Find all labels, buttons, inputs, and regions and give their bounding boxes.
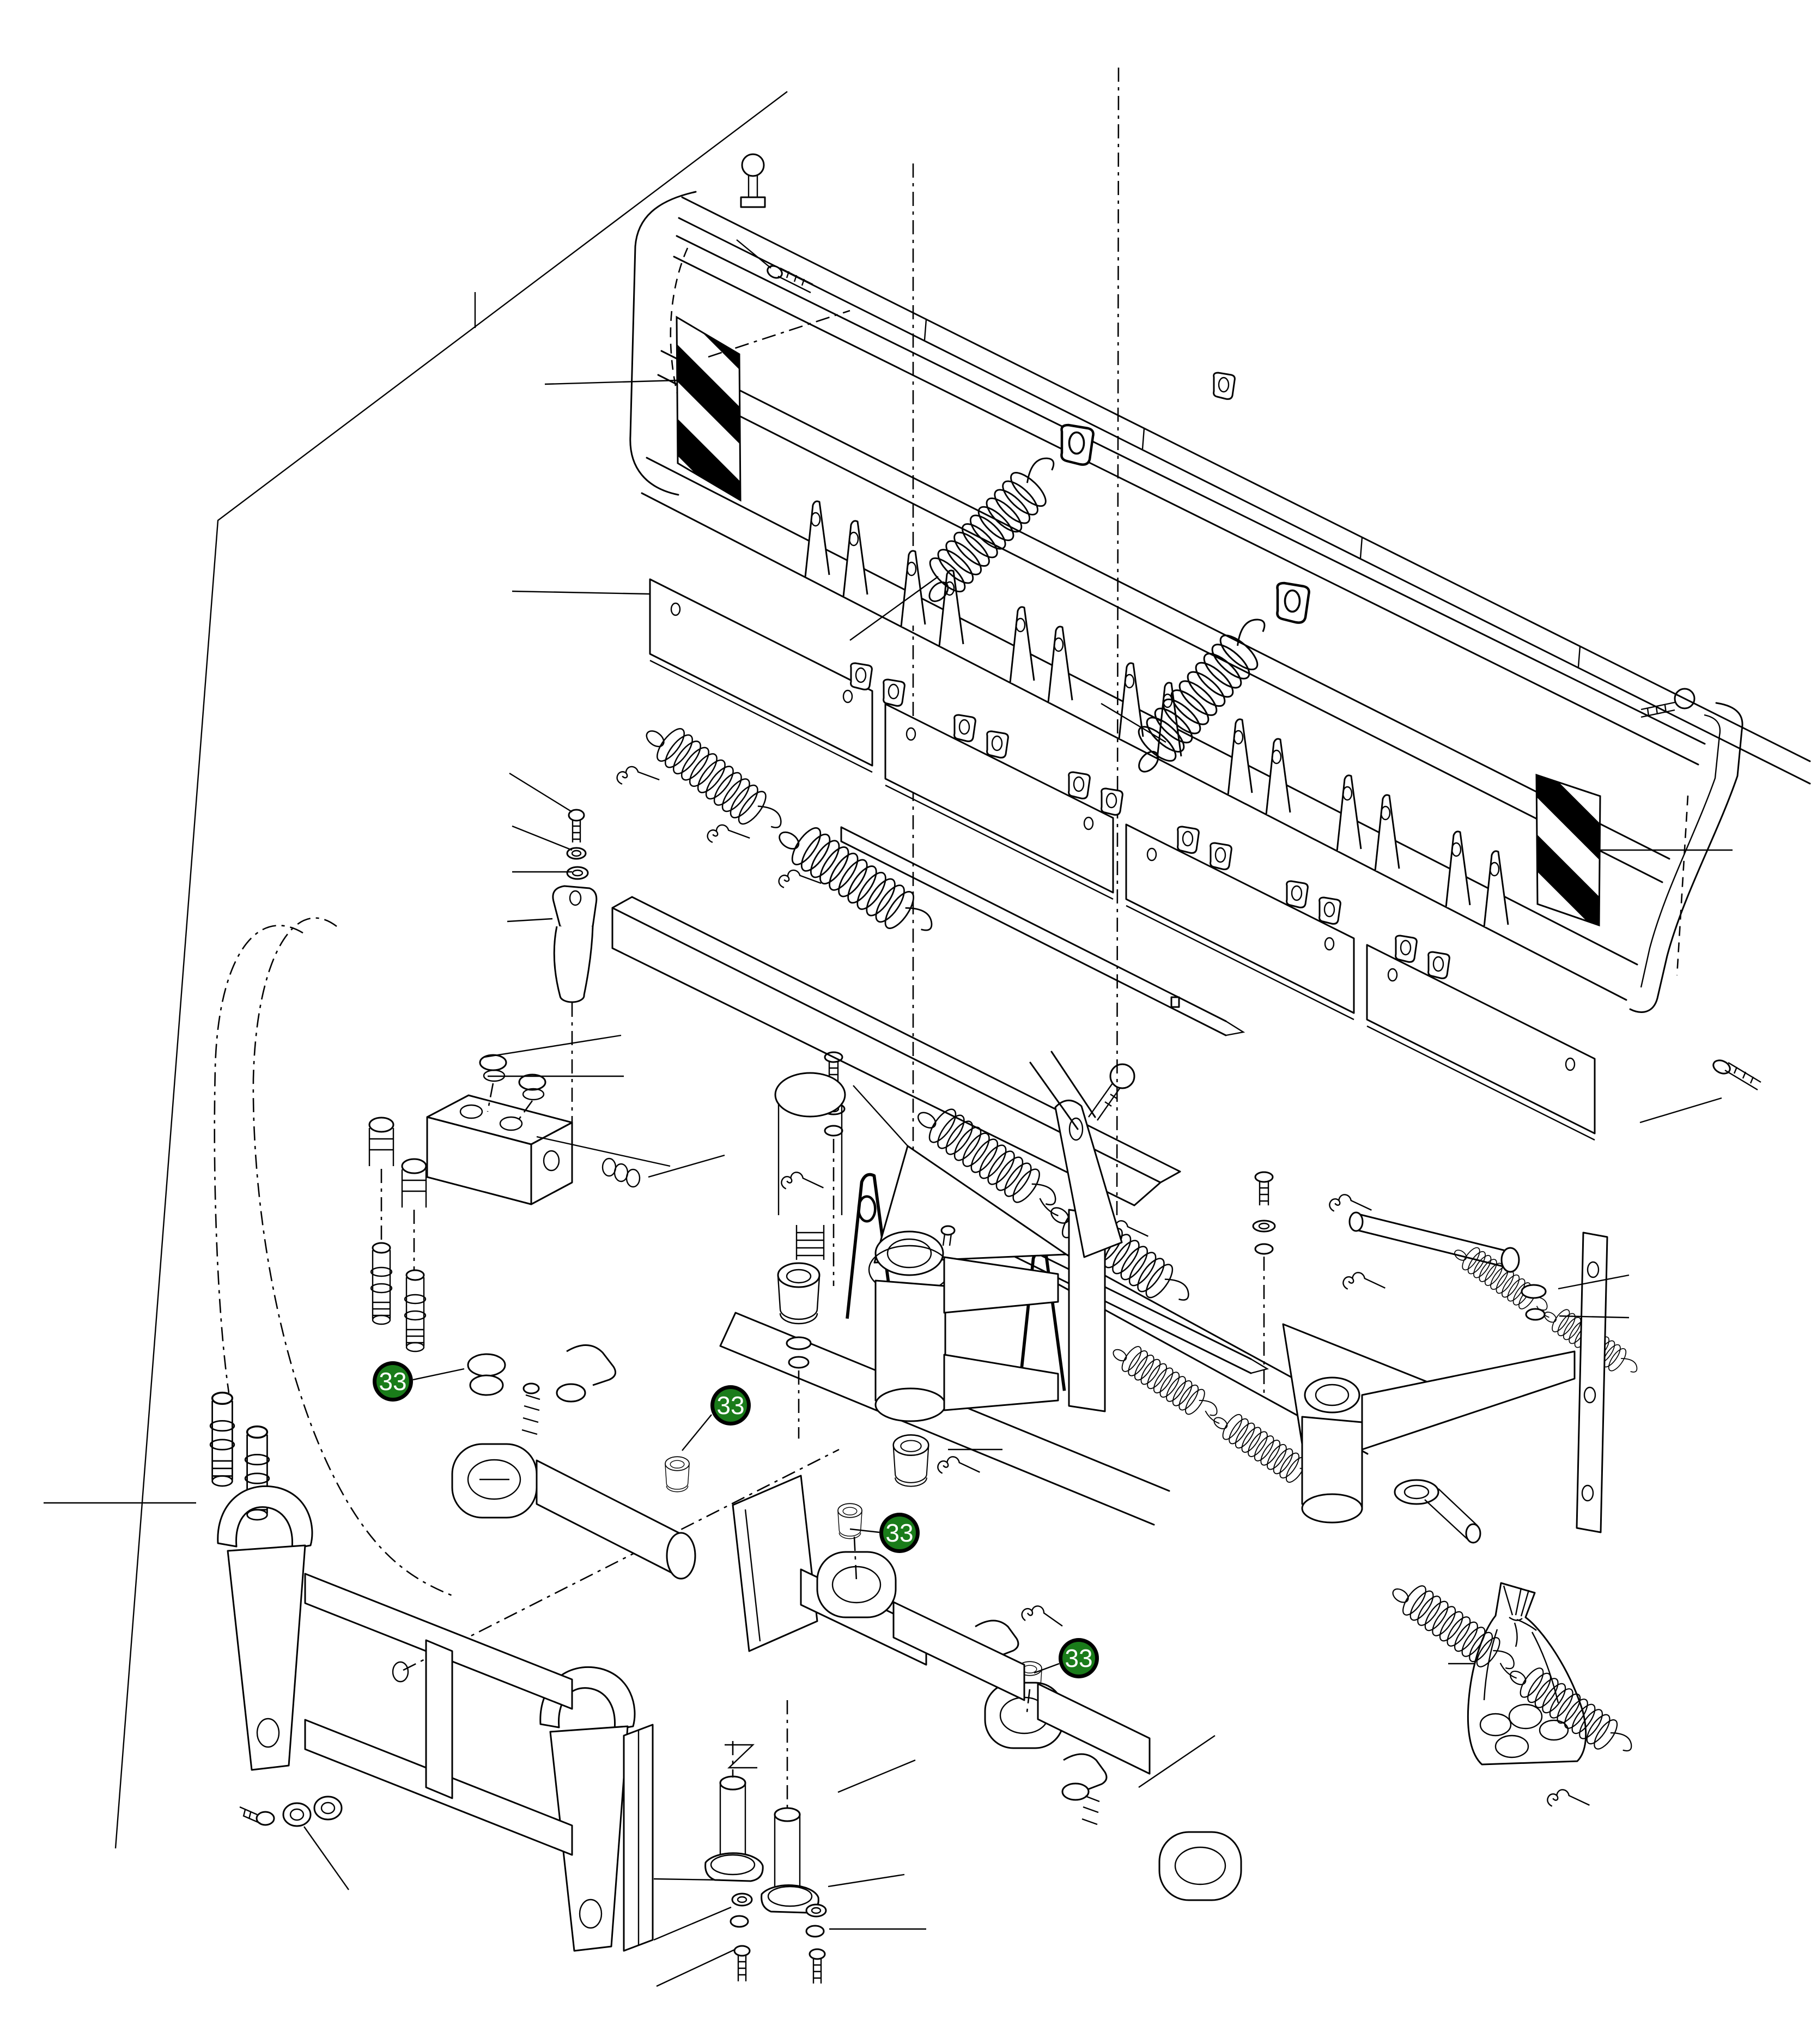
- warning-stripe-decal-right: [1536, 775, 1600, 925]
- callout-label: 33: [716, 1391, 744, 1420]
- callout-33-d[interactable]: 33: [1034, 1638, 1099, 1678]
- carriage-bolt-top: [765, 264, 813, 293]
- quick-attach-frame: [218, 1486, 653, 1951]
- exploded-parts-diagram: 33 33 33 33: [0, 0, 1817, 2044]
- carriage-bolt-right: [1711, 1058, 1761, 1090]
- leader-lines: [44, 240, 1733, 1986]
- right-pivot-assembly: [1283, 1212, 1607, 1543]
- warning-stripe-decal-left: [677, 317, 740, 500]
- eyebolt-top-left: [741, 154, 765, 207]
- king-pin-head: [775, 1073, 845, 1117]
- hitch-pins: [706, 1700, 826, 1984]
- callout-label: 33: [885, 1519, 913, 1547]
- diagram-canvas: 33 33 33 33: [0, 0, 1817, 2044]
- hardware-bag: [1468, 1583, 1585, 1764]
- callout-33-a[interactable]: 33: [373, 1361, 464, 1402]
- callout-label: 33: [379, 1367, 406, 1396]
- centerlines: [403, 68, 1119, 1670]
- hydraulic-manifold-block: [369, 1055, 640, 1351]
- callout-label: 33: [1065, 1644, 1092, 1672]
- callout-33-b[interactable]: 33: [682, 1385, 751, 1451]
